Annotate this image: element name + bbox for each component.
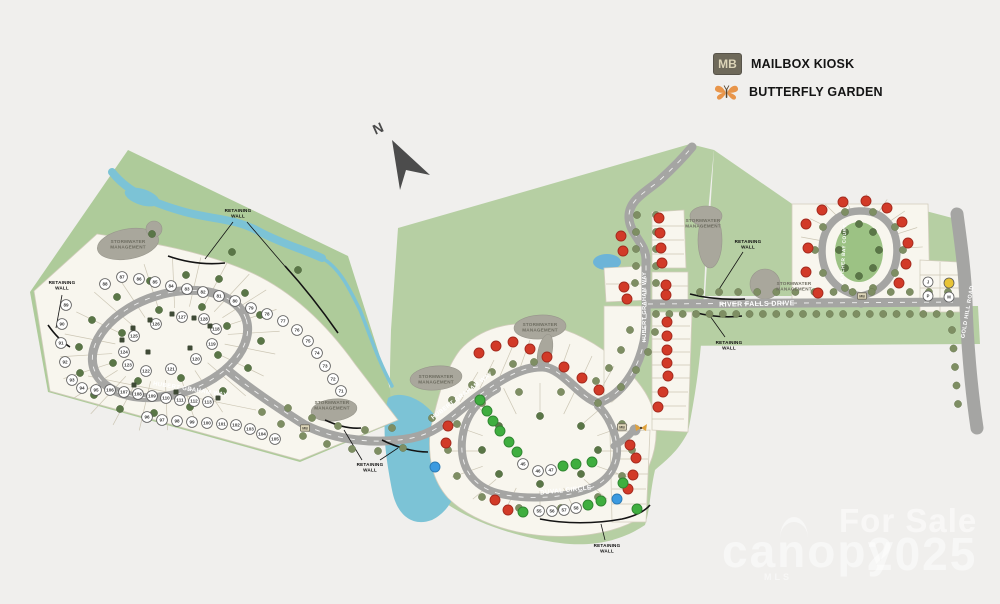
svg-text:STORMWATERMANAGEMENT: STORMWATERMANAGEMENT: [314, 400, 350, 410]
svg-text:97: 97: [159, 418, 165, 423]
svg-text:77: 77: [280, 319, 286, 324]
lot-status-dot: [618, 246, 628, 256]
svg-text:79: 79: [248, 306, 254, 311]
svg-text:104: 104: [258, 432, 266, 437]
lot-status-dot: [662, 317, 672, 327]
lot-status-dot: [625, 440, 635, 450]
lot-status-dot: [882, 203, 892, 213]
lot-status-dot: [903, 238, 913, 248]
svg-text:STORMWATERMANAGEMENT: STORMWATERMANAGEMENT: [685, 218, 721, 228]
lot-status-dot: [817, 205, 827, 215]
svg-text:78: 78: [264, 312, 270, 317]
lot-status-dot: [632, 504, 642, 514]
svg-text:57: 57: [561, 508, 567, 513]
lot-status-dot: [558, 461, 568, 471]
svg-text:M: M: [947, 295, 951, 300]
svg-text:101: 101: [218, 422, 226, 427]
svg-text:107: 107: [120, 390, 128, 395]
lot-status-dot: [628, 470, 638, 480]
svg-text:90: 90: [59, 322, 65, 327]
svg-text:123: 123: [124, 363, 132, 368]
svg-text:105: 105: [271, 437, 279, 442]
svg-text:125: 125: [130, 334, 138, 339]
svg-text:MB: MB: [302, 426, 308, 430]
legend-butterfly-row: BUTTERFLY GARDEN: [713, 82, 883, 102]
svg-text:113: 113: [204, 400, 212, 405]
lot-status-dot: [596, 496, 606, 506]
lot-status-dot: [612, 494, 622, 504]
svg-text:94: 94: [79, 386, 85, 391]
lot-status-dot: [663, 371, 673, 381]
svg-text:71: 71: [338, 389, 344, 394]
svg-text:109: 109: [148, 394, 156, 399]
lot-status-dot: [577, 373, 587, 383]
lot-status-dot: [571, 459, 581, 469]
lot-status-dot: [512, 447, 522, 457]
north-arrow-icon: [392, 140, 430, 190]
svg-text:126: 126: [152, 322, 160, 327]
svg-text:82: 82: [200, 290, 206, 295]
lot-status-dot: [656, 243, 666, 253]
svg-text:75: 75: [305, 339, 311, 344]
svg-text:93: 93: [69, 378, 75, 383]
lot-status-dot: [813, 288, 823, 298]
svg-text:RETAININGWALL: RETAININGWALL: [357, 462, 384, 472]
lot-status-dot: [503, 505, 513, 515]
svg-text:STORMWATERMANAGEMENT: STORMWATERMANAGEMENT: [418, 374, 454, 384]
lot-status-dot: [662, 331, 672, 341]
svg-text:74: 74: [314, 351, 320, 356]
svg-text:110: 110: [162, 396, 170, 401]
svg-text:111: 111: [176, 398, 184, 403]
lot-status-dot: [443, 421, 453, 431]
svg-text:128: 128: [200, 317, 208, 322]
svg-text:58: 58: [573, 506, 579, 511]
lot-status-dot: [525, 344, 535, 354]
svg-text:89: 89: [63, 303, 69, 308]
svg-text:RETAININGWALL: RETAININGWALL: [594, 543, 621, 553]
svg-text:103: 103: [246, 427, 254, 432]
lot-status-dot: [475, 395, 485, 405]
lot-status-dot: [662, 345, 672, 355]
lot-status-dot: [861, 196, 871, 206]
building-marker: [192, 316, 197, 321]
north-arrow: N: [370, 119, 430, 190]
svg-text:76: 76: [294, 328, 300, 333]
svg-text:83: 83: [184, 287, 190, 292]
svg-text:120: 120: [192, 357, 200, 362]
svg-text:56: 56: [549, 509, 555, 514]
svg-text:81: 81: [216, 294, 222, 299]
lot-status-dot: [482, 406, 492, 416]
lot-status-dot: [474, 348, 484, 358]
svg-text:72: 72: [330, 377, 336, 382]
lot-status-dot: [894, 278, 904, 288]
mailbox-kiosk-icon: MB: [713, 53, 742, 75]
lot-status-dot: [801, 219, 811, 229]
legend-mailbox-row: MB MAILBOX KIOSK: [713, 53, 883, 75]
lot-status-dot: [508, 337, 518, 347]
lot-status-dot: [490, 495, 500, 505]
lot-status-dot: [631, 453, 641, 463]
lot-status-dot: [655, 228, 665, 238]
butterfly-garden-label: BUTTERFLY GARDEN: [749, 85, 883, 99]
lot-status-dot: [542, 352, 552, 362]
svg-text:108: 108: [134, 392, 142, 397]
svg-text:84: 84: [168, 284, 174, 289]
svg-text:122: 122: [142, 369, 150, 374]
building-marker: [208, 324, 213, 329]
svg-text:80: 80: [232, 299, 238, 304]
building-marker: [188, 346, 193, 351]
lot-status-dot: [657, 258, 667, 268]
svg-text:46: 46: [535, 469, 541, 474]
lot-status-dot: [504, 437, 514, 447]
lot-status-dot: [661, 280, 671, 290]
svg-text:STORMWATERMANAGEMENT: STORMWATERMANAGEMENT: [110, 239, 146, 249]
svg-text:91: 91: [58, 341, 64, 346]
svg-text:112: 112: [190, 399, 198, 404]
lot-status-dot: [661, 290, 671, 300]
lot-status-dot: [518, 507, 528, 517]
svg-text:118: 118: [212, 327, 220, 332]
svg-text:STORMWATERMANAGEMENT: STORMWATERMANAGEMENT: [776, 281, 812, 291]
lot-status-dot: [618, 478, 628, 488]
lot-status-dot: [495, 426, 505, 436]
lot-status-dot: [801, 267, 811, 277]
svg-text:98: 98: [174, 419, 180, 424]
svg-text:102: 102: [232, 423, 240, 428]
lot-status-dot: [662, 358, 672, 368]
butterfly-icon: [713, 82, 740, 102]
lot-status-dot: [488, 416, 498, 426]
svg-text:73: 73: [322, 364, 328, 369]
lot-status-dot: [838, 197, 848, 207]
north-label: N: [370, 119, 386, 138]
lot-status-dot: [616, 231, 626, 241]
lot-status-dot: [583, 500, 593, 510]
svg-text:85: 85: [152, 280, 158, 285]
svg-text:119: 119: [208, 342, 216, 347]
svg-text:55: 55: [536, 509, 542, 514]
lot-status-dot: [897, 217, 907, 227]
mailbox-kiosk-label: MAILBOX KIOSK: [751, 57, 854, 71]
svg-text:100: 100: [203, 421, 211, 426]
lot-status-dot: [658, 387, 668, 397]
svg-text:MB: MB: [619, 425, 625, 429]
building-marker: [146, 350, 151, 355]
building-marker: [120, 338, 125, 343]
svg-text:P: P: [927, 294, 930, 299]
svg-text:92: 92: [62, 360, 68, 365]
svg-text:MB: MB: [859, 294, 865, 298]
svg-text:47: 47: [548, 468, 554, 473]
svg-text:86: 86: [136, 277, 142, 282]
lot-status-dot: [491, 341, 501, 351]
road-label: RIVER FALLS DRIVE: [719, 300, 795, 308]
lot-status-dot: [622, 294, 632, 304]
watermark-brand-sub: MLS: [764, 572, 792, 582]
road-label: HUBERT GRAHAM WAY: [642, 272, 648, 343]
svg-text:STORMWATERMANAGEMENT: STORMWATERMANAGEMENT: [522, 322, 558, 332]
svg-text:88: 88: [102, 282, 108, 287]
lot-status-dot: [430, 462, 440, 472]
svg-text:127: 127: [178, 315, 186, 320]
utility-marker: [944, 278, 954, 288]
svg-text:87: 87: [119, 275, 125, 280]
lot-status-dot: [803, 243, 813, 253]
lot-status-dot: [619, 282, 629, 292]
legend: MB MAILBOX KIOSK BUTTERFLY GARDEN: [713, 53, 883, 102]
lot-status-dot: [441, 438, 451, 448]
svg-text:99: 99: [189, 420, 195, 425]
lot-status-dot: [654, 213, 664, 223]
lot-status-dot: [901, 259, 911, 269]
svg-text:96: 96: [144, 415, 150, 420]
lot-status-dot: [587, 457, 597, 467]
building-marker: [148, 318, 153, 323]
building-marker: [132, 383, 137, 388]
lot-status-dot: [594, 385, 604, 395]
svg-text:95: 95: [93, 388, 99, 393]
lot-status-dot: [653, 402, 663, 412]
svg-text:106: 106: [106, 388, 114, 393]
building-marker: [131, 326, 136, 331]
watermark-year: 2025: [867, 527, 977, 581]
svg-text:121: 121: [167, 367, 175, 372]
lot-status-dot: [559, 362, 569, 372]
svg-text:45: 45: [520, 462, 526, 467]
building-marker: [170, 312, 175, 317]
svg-text:124: 124: [120, 350, 128, 355]
